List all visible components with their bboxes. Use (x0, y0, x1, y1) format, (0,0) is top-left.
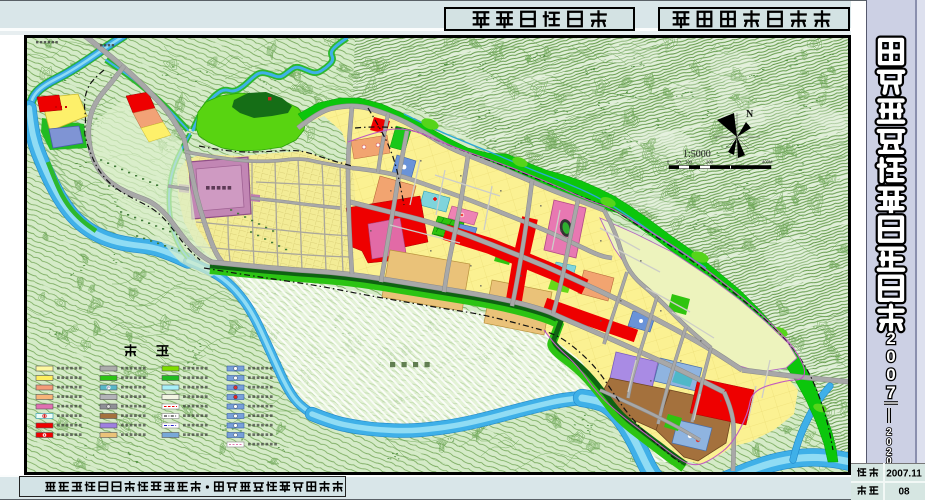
svg-text:1:5000: 1:5000 (683, 149, 711, 160)
svg-text:0: 0 (886, 365, 895, 384)
svg-text:0: 0 (886, 456, 892, 463)
svg-text:50: 50 (676, 160, 681, 165)
svg-text:400M: 400M (762, 160, 773, 165)
svg-text:100: 100 (685, 160, 693, 165)
svg-text:200: 200 (706, 160, 714, 165)
svg-text:0: 0 (886, 347, 895, 366)
svg-text:2: 2 (886, 329, 895, 348)
svg-text:7: 7 (886, 383, 895, 402)
svg-text:N: N (746, 109, 754, 120)
svg-text:08: 08 (898, 487, 910, 498)
svg-text:2007.11: 2007.11 (886, 469, 922, 480)
